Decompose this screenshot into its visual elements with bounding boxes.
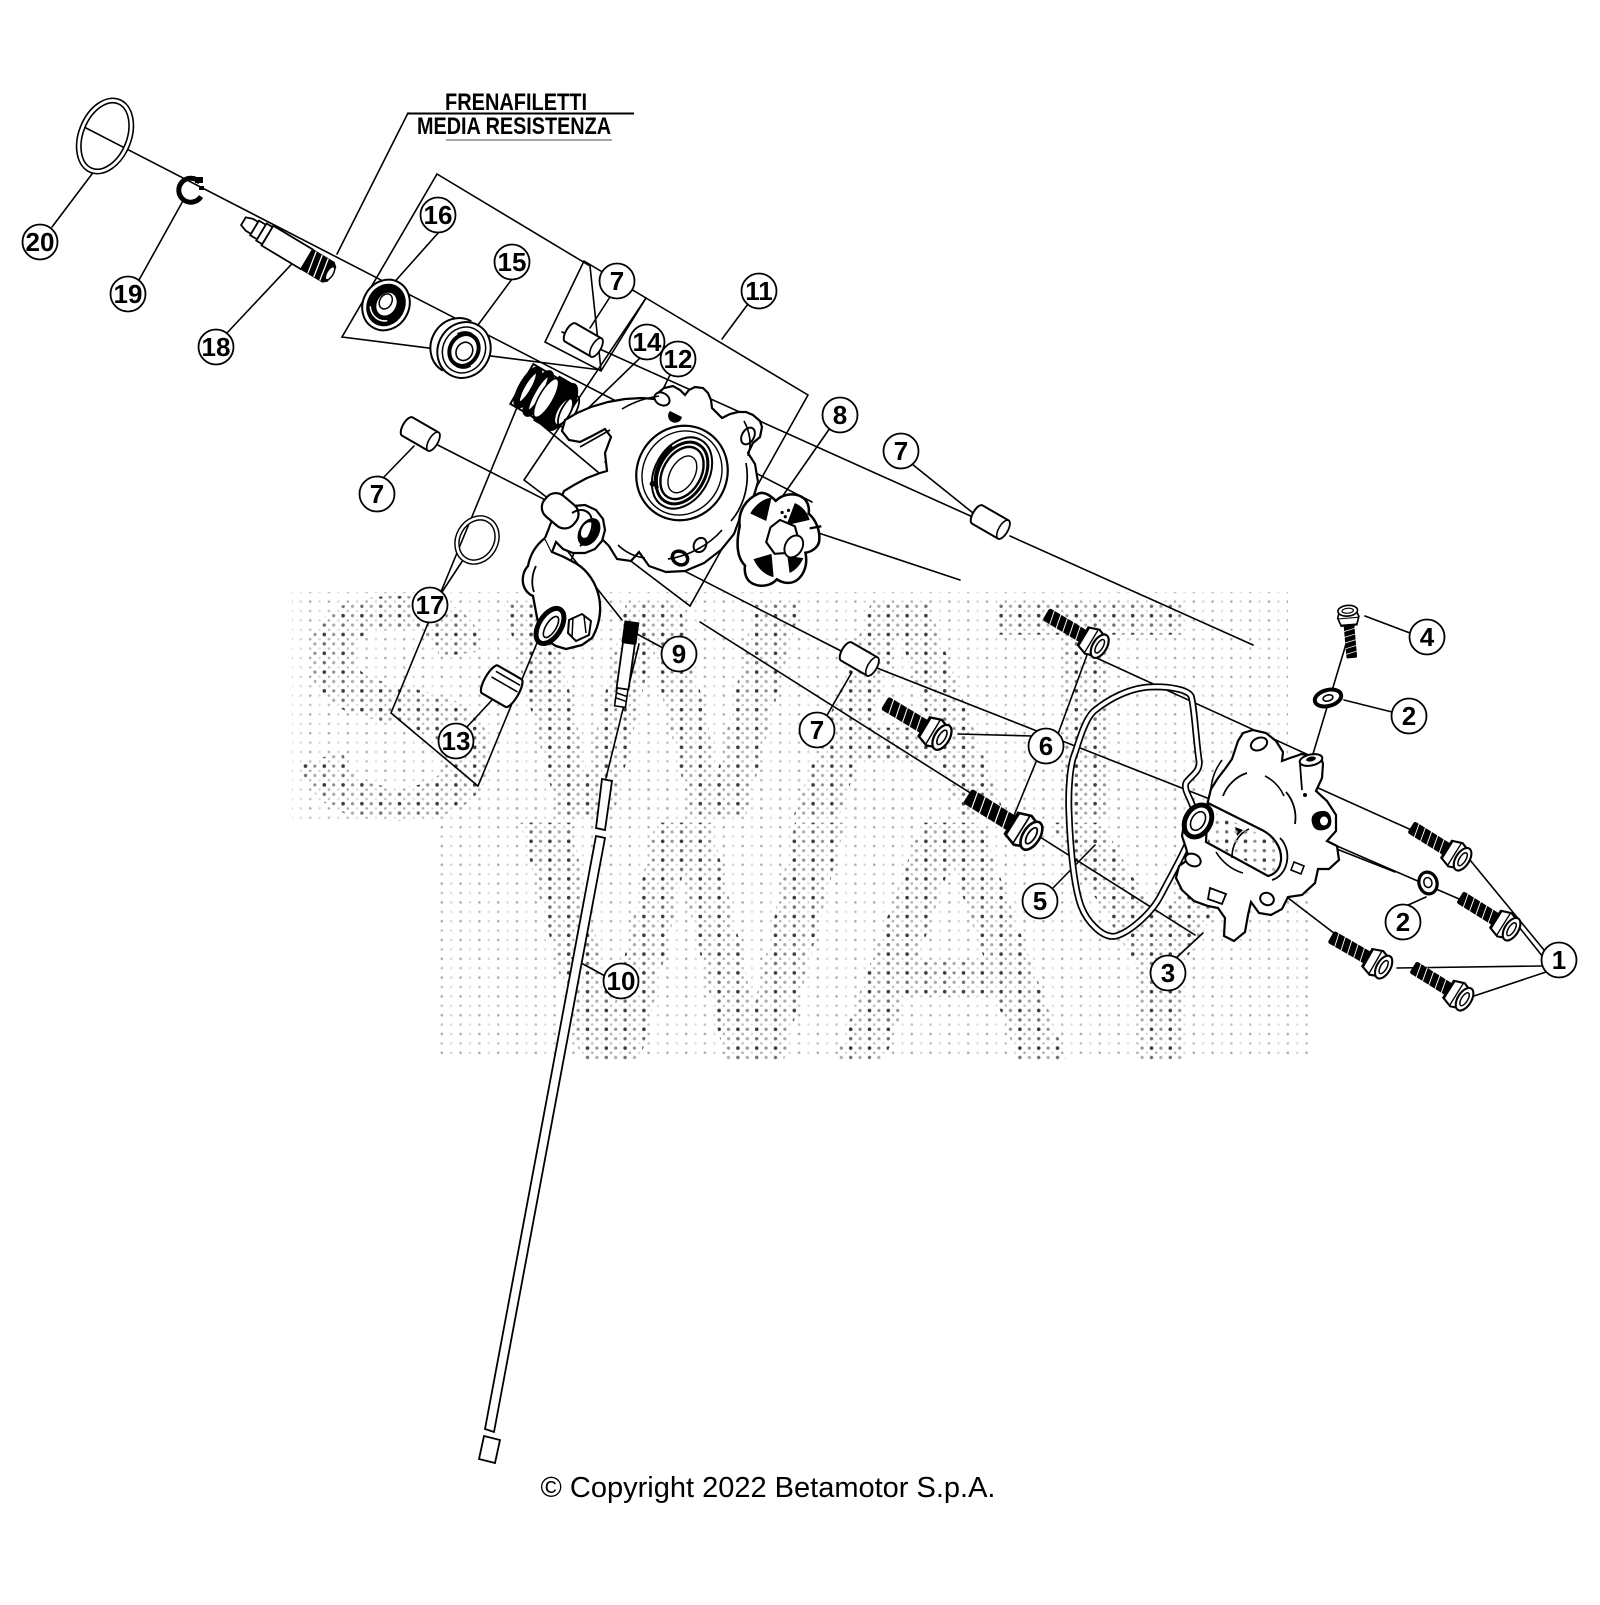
svg-text:6: 6 [1039,731,1053,761]
svg-text:5: 5 [1033,886,1047,916]
svg-text:10: 10 [607,966,636,996]
svg-text:20: 20 [26,227,55,257]
svg-text:14: 14 [633,327,662,357]
svg-text:FRENAFILETTI: FRENAFILETTI [445,89,587,116]
svg-text:WAY: WAY [520,749,1274,1134]
svg-text:11: 11 [745,276,773,306]
svg-text:7: 7 [610,266,624,296]
svg-text:19: 19 [114,279,143,309]
svg-text:MEDIA RESISTENZA: MEDIA RESISTENZA [417,113,611,140]
svg-text:17: 17 [416,590,445,620]
svg-text:7: 7 [894,436,908,466]
svg-text:18: 18 [202,332,231,362]
svg-text:3: 3 [1161,958,1175,988]
svg-text:7: 7 [370,479,384,509]
svg-text:8: 8 [833,400,847,430]
svg-text:7: 7 [810,715,824,745]
svg-text:© Copyright 2022 Betamotor S.p: © Copyright 2022 Betamotor S.p.A. [541,1472,996,1504]
svg-text:15: 15 [498,247,527,277]
svg-text:4: 4 [1420,622,1435,652]
svg-text:1: 1 [1552,945,1566,975]
svg-text:2: 2 [1402,701,1416,731]
svg-text:12: 12 [664,344,693,374]
svg-text:16: 16 [424,200,453,230]
svg-text:2: 2 [1396,907,1410,937]
svg-text:9: 9 [672,639,686,669]
svg-text:13: 13 [442,726,471,756]
